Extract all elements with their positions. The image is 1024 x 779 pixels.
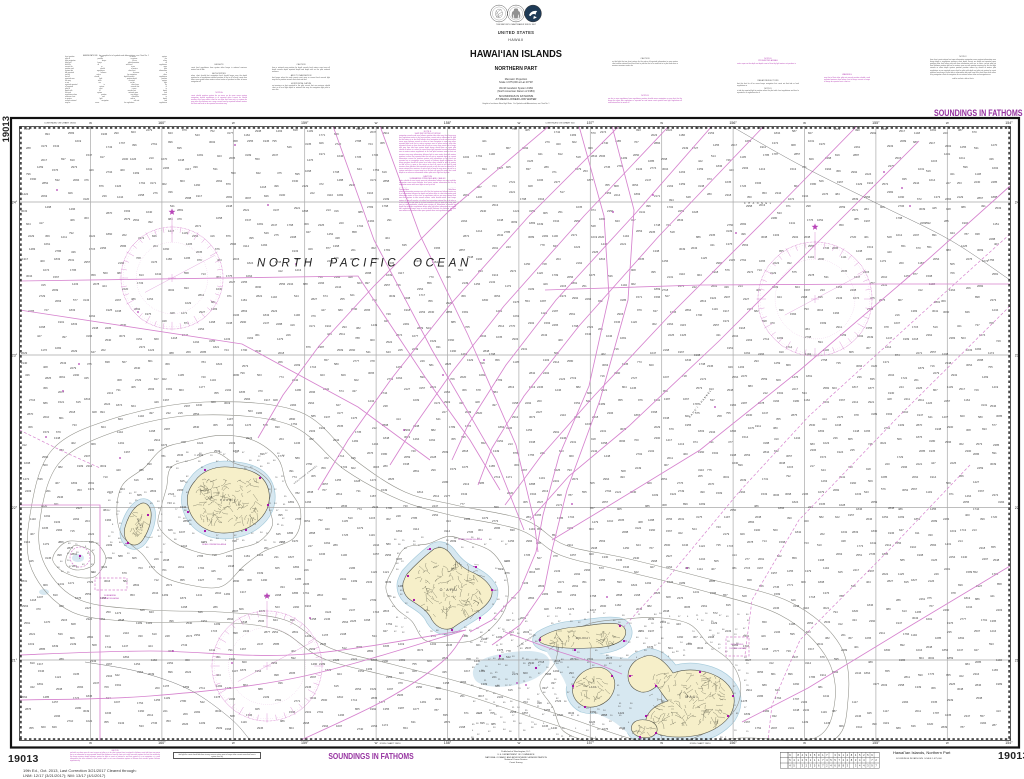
svg-text:1705: 1705 [524,553,531,557]
svg-text:4: 4 [668,656,670,658]
svg-text:986: 986 [961,205,966,209]
svg-text:844: 844 [273,618,278,622]
svg-text:1891: 1891 [806,374,813,378]
svg-text:1058: 1058 [216,216,223,220]
svg-text:1797: 1797 [793,697,800,701]
svg-text:1704: 1704 [357,224,364,228]
svg-text:1179: 1179 [505,284,511,288]
svg-text:3114: 3114 [243,244,249,248]
svg-text:533: 533 [777,211,782,215]
svg-text:2334: 2334 [287,282,294,286]
svg-text:577: 577 [73,298,78,302]
svg-text:61: 61 [277,524,280,526]
svg-text:1329: 1329 [856,182,863,186]
svg-text:1615: 1615 [787,465,794,469]
svg-text:3189: 3189 [871,412,878,416]
svg-text:1898: 1898 [302,209,309,213]
svg-text:824: 824 [795,285,800,289]
svg-text:3114: 3114 [805,661,811,665]
svg-text:244: 244 [899,385,904,389]
svg-text:2402: 2402 [543,371,550,375]
svg-text:924: 924 [337,672,342,676]
svg-text:2740: 2740 [357,727,364,731]
svg-text:2607: 2607 [232,609,239,613]
svg-text:353: 353 [166,719,171,723]
svg-text:1596: 1596 [654,295,661,299]
svg-text:329: 329 [412,669,417,673]
svg-text:204: 204 [556,257,561,261]
svg-text:1635: 1635 [42,526,49,530]
svg-text:2723: 2723 [587,325,594,329]
svg-text:1681: 1681 [620,336,627,340]
svg-text:379: 379 [311,314,316,318]
svg-text:2652: 2652 [807,621,814,625]
svg-text:2656: 2656 [567,275,574,279]
svg-text:2774: 2774 [650,166,657,170]
svg-text:3039: 3039 [919,207,926,211]
svg-text:2615: 2615 [233,257,240,261]
svg-text:1790: 1790 [241,348,248,352]
svg-text:2940: 2940 [480,209,487,213]
svg-text:2964: 2964 [308,401,315,405]
svg-text:2770: 2770 [509,324,516,328]
svg-text:801: 801 [59,416,64,420]
svg-text:1317: 1317 [240,590,247,594]
svg-text:412: 412 [278,269,283,273]
svg-text:2663: 2663 [836,552,843,556]
svg-text:992: 992 [787,261,792,265]
svg-text:997: 997 [365,281,370,285]
svg-text:2927: 2927 [199,310,206,314]
svg-text:1798: 1798 [896,216,903,220]
svg-text:2671: 2671 [166,583,173,587]
svg-text:381: 381 [732,566,737,570]
svg-text:98: 98 [564,701,567,703]
svg-text:2397: 2397 [868,569,875,573]
svg-text:2085: 2085 [919,449,926,453]
svg-text:1536: 1536 [614,320,621,324]
svg-text:615: 615 [334,684,339,688]
svg-text:2201: 2201 [944,567,951,571]
svg-text:2603: 2603 [881,683,888,687]
svg-text:1263: 1263 [821,479,828,483]
svg-text:960: 960 [569,454,574,458]
svg-text:1340: 1340 [961,555,968,559]
svg-text:290: 290 [114,131,119,135]
svg-text:9: 9 [161,514,163,516]
svg-text:791: 791 [228,648,233,652]
svg-text:2613: 2613 [542,489,549,493]
svg-text:2839: 2839 [852,197,859,201]
svg-text:3054: 3054 [966,363,973,367]
svg-text:955: 955 [180,578,185,582]
svg-text:709: 709 [104,685,109,689]
svg-text:2568: 2568 [661,157,668,161]
svg-text:3069: 3069 [977,248,984,252]
svg-text:436: 436 [989,157,994,161]
svg-text:1748: 1748 [654,223,661,227]
svg-text:672: 672 [917,197,922,201]
svg-text:20: 20 [746,663,749,665]
svg-text:4: 4 [697,619,699,621]
svg-text:396: 396 [169,619,174,623]
svg-text:1068: 1068 [39,325,46,329]
svg-text:1022: 1022 [86,719,93,723]
svg-text:2271: 2271 [916,351,923,355]
svg-text:W: W [89,741,92,745]
svg-text:83: 83 [129,493,132,495]
svg-text:589: 589 [295,456,300,460]
svg-text:1884: 1884 [293,565,300,569]
svg-text:1120: 1120 [537,271,543,275]
svg-text:2415: 2415 [560,284,567,288]
svg-text:2560: 2560 [42,455,49,459]
svg-text:2276: 2276 [822,192,829,196]
svg-text:2953: 2953 [510,710,517,714]
svg-text:1029: 1029 [185,301,192,305]
svg-text:2857: 2857 [794,152,801,156]
svg-text:2282: 2282 [194,710,201,714]
svg-text:718: 718 [682,374,687,378]
svg-text:1824: 1824 [792,500,799,504]
svg-text:78: 78 [273,542,276,544]
svg-text:69: 69 [176,461,179,463]
svg-text:693: 693 [184,286,189,290]
svg-text:577: 577 [992,423,997,427]
svg-text:W: W [89,121,92,125]
svg-text:37: 37 [223,454,226,456]
svg-text:886: 886 [975,597,980,601]
svg-text:1309: 1309 [481,682,488,686]
svg-text:276: 276 [153,191,158,195]
svg-text:55: 55 [146,547,149,549]
svg-text:1717: 1717 [419,293,426,297]
svg-text:2621: 2621 [29,632,36,636]
svg-text:2659: 2659 [871,500,878,504]
svg-text:79: 79 [505,596,508,598]
svg-text:510: 510 [817,543,822,547]
svg-text:1496: 1496 [69,207,76,211]
svg-text:378: 378 [553,554,558,558]
svg-text:314: 314 [446,519,451,523]
svg-text:625: 625 [838,570,843,574]
svg-text:40: 40 [547,703,550,705]
svg-text:1914: 1914 [930,475,937,479]
svg-text:876: 876 [226,234,231,238]
svg-text:1455: 1455 [154,698,161,702]
svg-text:595: 595 [790,632,795,636]
svg-text:6: 6 [834,764,836,768]
svg-text:1916: 1916 [367,191,374,195]
svg-text:3034: 3034 [26,274,33,278]
svg-text:1976: 1976 [947,621,954,625]
svg-text:1731: 1731 [762,477,769,481]
svg-text:1635: 1635 [725,180,732,184]
svg-text:36: 36 [523,730,526,732]
svg-text:62: 62 [547,616,550,618]
svg-text:2334: 2334 [709,430,716,434]
svg-text:1568: 1568 [651,410,658,414]
svg-text:1917: 1917 [723,309,730,313]
svg-text:20: 20 [527,699,530,701]
svg-text:1447: 1447 [122,644,129,648]
svg-text:40: 40 [636,637,639,639]
svg-text:2506: 2506 [599,154,606,158]
svg-text:1491: 1491 [118,441,125,445]
svg-text:1062: 1062 [89,314,96,318]
svg-text:2912: 2912 [154,438,161,442]
svg-text:396: 396 [646,204,651,208]
svg-text:2638: 2638 [663,609,670,613]
svg-text:1452: 1452 [327,232,334,236]
svg-text:1364: 1364 [949,288,956,292]
svg-text:2300: 2300 [965,449,972,453]
svg-text:2584: 2584 [930,543,937,547]
svg-text:3057: 3057 [786,454,793,458]
svg-text:46: 46 [489,539,492,541]
svg-text:2327: 2327 [76,506,83,510]
svg-text:3171: 3171 [150,181,157,185]
svg-text:2054: 2054 [355,687,362,691]
svg-text:486: 486 [754,504,759,508]
svg-text:307: 307 [693,635,698,639]
svg-text:1762: 1762 [476,154,483,158]
svg-text:1824: 1824 [247,261,254,265]
svg-text:1441: 1441 [196,593,203,597]
svg-text:1547: 1547 [245,218,252,222]
svg-text:2818: 2818 [462,449,469,453]
svg-text:1848: 1848 [383,436,390,440]
svg-text:1132: 1132 [210,378,216,382]
svg-text:97: 97 [108,510,111,512]
svg-text:464: 464 [385,236,390,240]
svg-text:308: 308 [117,378,122,382]
svg-text:1482: 1482 [352,439,359,443]
svg-text:641: 641 [928,415,933,419]
svg-text:2915: 2915 [617,312,624,316]
svg-text:505: 505 [950,262,955,266]
svg-text:398: 398 [57,553,62,557]
svg-text:1387: 1387 [664,397,671,401]
svg-text:W: W [232,121,235,125]
svg-text:2200: 2200 [122,157,129,161]
svg-text:1790: 1790 [696,313,703,317]
svg-text:2042: 2042 [497,233,504,237]
svg-text:2420: 2420 [122,287,129,291]
svg-text:823: 823 [118,417,123,421]
svg-text:C H A N N E L: C H A N N E L [744,202,772,205]
svg-text:1146: 1146 [138,414,144,418]
svg-text:92: 92 [738,670,741,672]
svg-text:37: 37 [505,544,508,546]
svg-text:2227: 2227 [536,410,543,414]
svg-text:537: 537 [710,398,715,402]
svg-text:981: 981 [818,685,823,689]
svg-text:407: 407 [994,242,999,246]
svg-text:2992: 2992 [572,296,579,300]
svg-text:2132: 2132 [803,708,810,712]
svg-text:600: 600 [523,671,528,675]
svg-text:1980: 1980 [793,399,800,403]
svg-text:200: 200 [537,399,542,403]
svg-text:2266: 2266 [318,281,325,285]
svg-text:724: 724 [368,142,373,146]
svg-text:321: 321 [950,172,955,176]
svg-text:928: 928 [92,410,97,414]
svg-text:768: 768 [136,256,141,260]
svg-text:1776: 1776 [928,672,935,676]
svg-text:27: 27 [282,481,285,483]
svg-text:1833: 1833 [54,257,61,261]
svg-text:47: 47 [517,629,520,631]
svg-text:622: 622 [634,570,639,574]
svg-text:944: 944 [777,295,782,299]
svg-text:2286: 2286 [757,694,764,698]
svg-text:47: 47 [498,628,501,630]
svg-text:497: 497 [149,411,154,415]
svg-text:2743: 2743 [181,643,188,647]
svg-text:2303: 2303 [309,429,316,433]
svg-text:2221: 2221 [620,242,627,246]
svg-text:903: 903 [589,527,594,531]
svg-text:1065: 1065 [864,429,871,433]
svg-text:1085: 1085 [881,475,888,479]
svg-text:1715: 1715 [912,325,919,329]
svg-text:2214: 2214 [614,193,621,197]
svg-text:657: 657 [723,593,728,597]
svg-text:2762: 2762 [740,258,747,262]
svg-text:674: 674 [323,294,328,298]
svg-text:24: 24 [484,642,487,644]
svg-text:355: 355 [29,726,34,730]
svg-text:542: 542 [506,655,511,659]
svg-text:1454: 1454 [134,662,141,666]
svg-text:849: 849 [52,725,57,729]
svg-text:1945: 1945 [263,139,270,143]
svg-text:84: 84 [119,542,122,544]
svg-text:73: 73 [486,724,489,726]
svg-text:231: 231 [274,555,279,559]
svg-text:60: 60 [273,460,276,462]
svg-text:669: 669 [427,659,432,663]
svg-text:2579: 2579 [124,217,131,221]
svg-text:239: 239 [102,194,107,198]
svg-text:74: 74 [173,496,176,498]
svg-text:2023: 2023 [651,133,658,137]
svg-text:229: 229 [154,557,159,561]
svg-text:550: 550 [231,171,236,175]
svg-text:209: 209 [183,712,188,716]
svg-text:2571: 2571 [852,208,859,212]
svg-text:861: 861 [771,672,776,676]
svg-text:468: 468 [43,365,48,369]
svg-text:55: 55 [479,688,482,690]
svg-text:3138: 3138 [698,184,705,188]
svg-text:3049: 3049 [83,709,90,713]
svg-text:1006: 1006 [537,178,544,182]
svg-text:1407: 1407 [942,415,949,419]
svg-text:3002: 3002 [209,140,216,144]
svg-text:448: 448 [348,275,353,279]
svg-text:2599: 2599 [442,450,449,454]
svg-text:1174: 1174 [382,723,388,727]
svg-text:1285: 1285 [295,577,302,581]
svg-text:1247: 1247 [886,336,893,340]
svg-text:1082: 1082 [55,346,62,350]
svg-text:2573: 2573 [696,386,703,390]
svg-text:NORTH PACIFIC OCEAN: NORTH PACIFIC OCEAN [257,258,472,270]
svg-text:1726: 1726 [740,184,747,188]
svg-text:SUBM OPERATING AREA: SUBM OPERATING AREA [458,538,483,541]
svg-text:2585: 2585 [273,642,280,646]
svg-text:253: 253 [957,181,962,185]
svg-text:550: 550 [255,157,260,161]
svg-text:1033: 1033 [667,580,674,584]
svg-text:2160: 2160 [382,659,389,663]
svg-text:2292: 2292 [574,572,581,576]
svg-text:275: 275 [274,233,279,237]
svg-text:1479: 1479 [592,520,599,524]
svg-text:3: 3 [855,764,857,768]
svg-text:1360: 1360 [138,709,145,713]
svg-text:2588: 2588 [185,196,192,200]
svg-text:2466: 2466 [758,352,765,356]
svg-text:28: 28 [264,540,267,542]
svg-text:2870: 2870 [916,423,923,427]
svg-text:155°: 155° [872,121,880,125]
svg-text:989: 989 [886,607,891,611]
svg-text:964: 964 [697,273,702,277]
svg-text:359: 359 [321,466,326,470]
svg-text:2984: 2984 [244,397,251,401]
svg-text:2106: 2106 [774,630,781,634]
svg-text:1084: 1084 [975,347,982,351]
svg-text:2881: 2881 [177,208,184,212]
svg-text:1538: 1538 [403,462,410,466]
svg-text:37: 37 [527,688,530,690]
svg-text:3196: 3196 [86,334,93,338]
svg-text:1478: 1478 [741,699,748,703]
svg-text:1016: 1016 [916,648,923,652]
svg-text:2062: 2062 [21,695,28,699]
svg-text:316: 316 [334,209,339,213]
svg-text:1967: 1967 [837,180,844,184]
svg-text:3106: 3106 [233,313,240,317]
svg-text:3114: 3114 [444,529,450,533]
svg-text:528: 528 [887,235,892,239]
svg-text:3090: 3090 [255,285,262,289]
svg-text:2065: 2065 [364,308,371,312]
svg-text:700: 700 [217,577,222,581]
svg-text:220: 220 [885,462,890,466]
svg-text:541: 541 [170,204,175,208]
svg-text:3056: 3056 [757,670,764,674]
svg-text:3199: 3199 [245,153,252,157]
svg-text:2: 2 [806,764,808,768]
svg-text:249: 249 [420,359,425,363]
svg-text:1271: 1271 [181,311,188,315]
svg-text:1456: 1456 [474,282,481,286]
svg-text:2734: 2734 [106,170,113,174]
svg-text:1834: 1834 [774,131,781,135]
svg-text:622: 622 [835,515,840,519]
svg-text:714: 714 [762,539,767,543]
svg-text:708: 708 [466,657,471,661]
svg-text:355: 355 [776,417,781,421]
svg-text:2244: 2244 [373,543,380,547]
svg-text:334: 334 [307,558,312,562]
svg-text:351: 351 [582,580,587,584]
